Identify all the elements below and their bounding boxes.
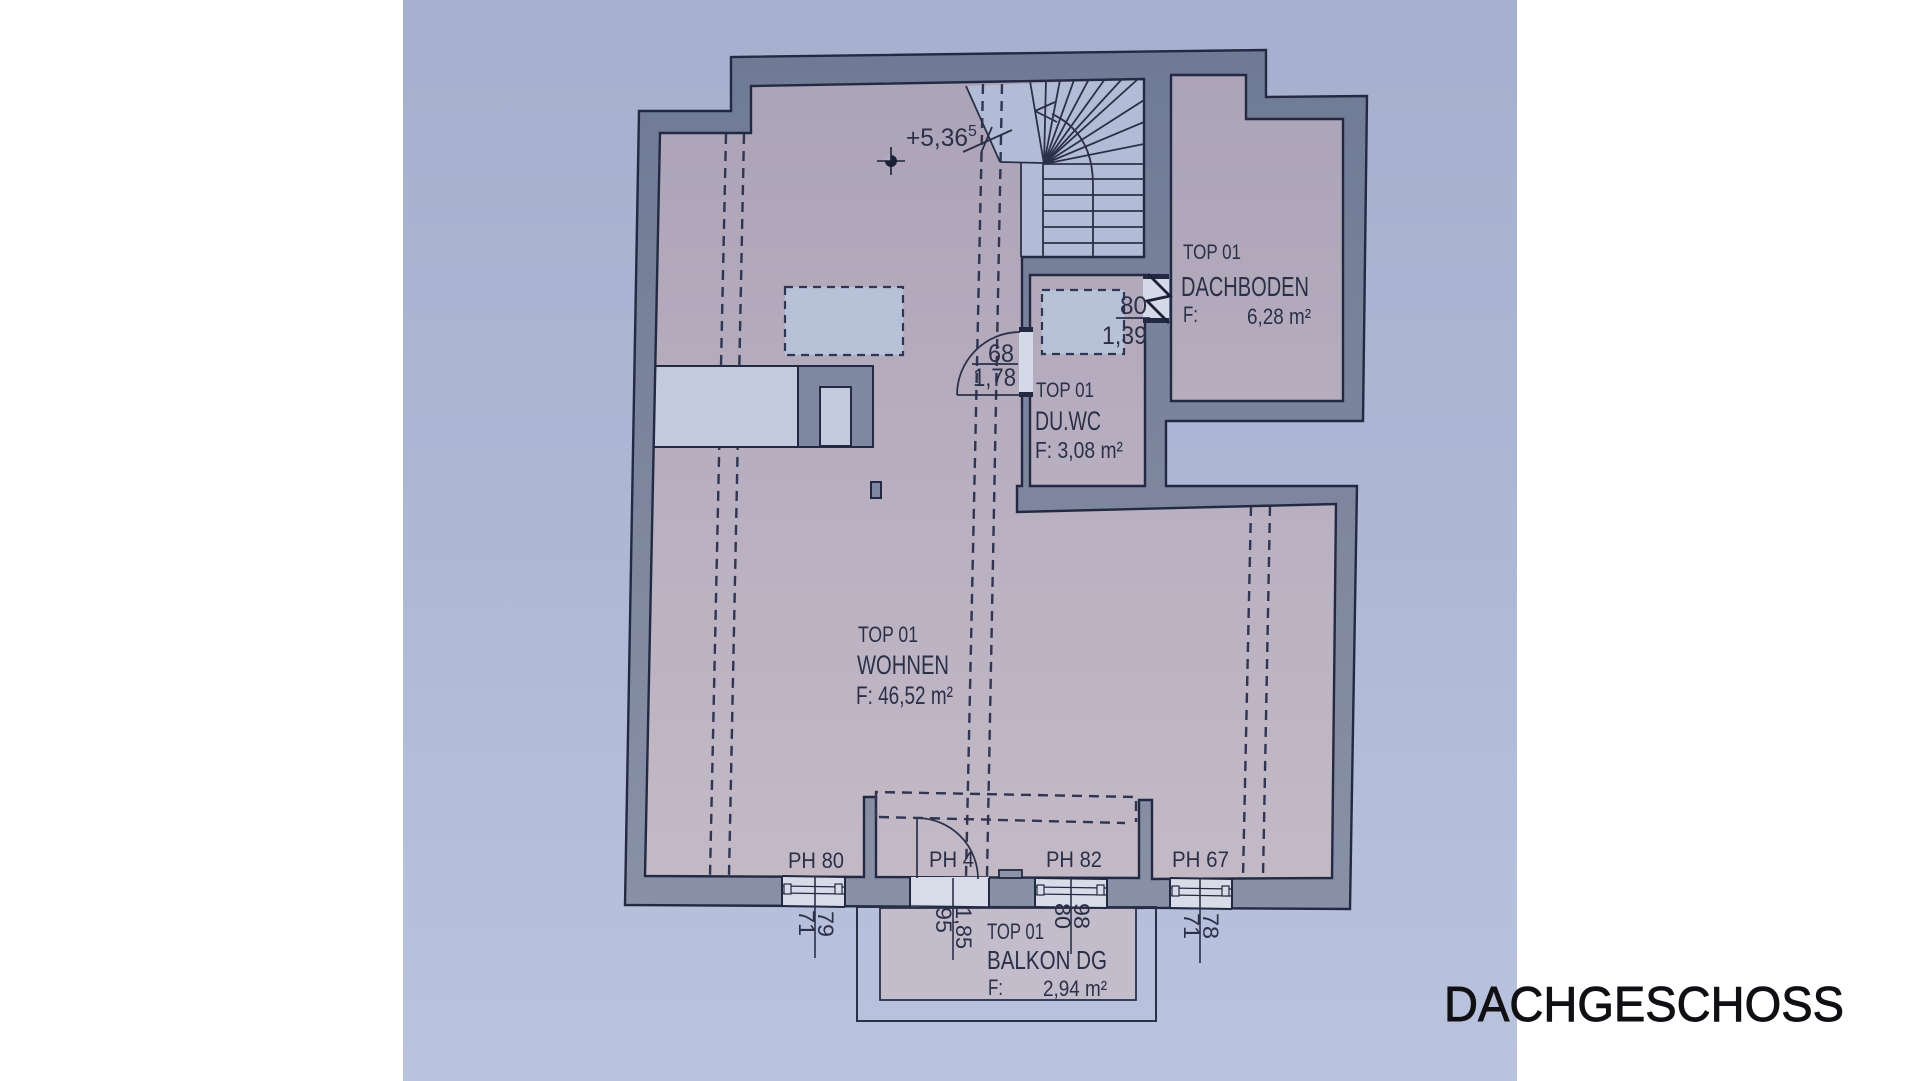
svg-text:TOP 01: TOP 01 xyxy=(987,919,1044,944)
svg-text:5: 5 xyxy=(968,123,977,140)
svg-text:78: 78 xyxy=(1198,913,1223,939)
svg-text:F: 46,52 m²: F: 46,52 m² xyxy=(856,682,953,710)
svg-text:F: 3,08 m²: F: 3,08 m² xyxy=(1035,437,1123,463)
svg-text:79: 79 xyxy=(813,911,838,937)
svg-text:F:: F: xyxy=(988,975,1003,1000)
svg-text:PH 80: PH 80 xyxy=(788,848,844,873)
svg-text:PH 67: PH 67 xyxy=(1172,847,1229,872)
svg-text:1,39: 1,39 xyxy=(1102,322,1147,350)
svg-text:80: 80 xyxy=(1120,292,1147,320)
svg-text:TOP 01: TOP 01 xyxy=(1183,241,1241,264)
svg-text:WOHNEN: WOHNEN xyxy=(857,650,949,680)
svg-text:DU.WC: DU.WC xyxy=(1035,406,1101,436)
svg-text:PH 82: PH 82 xyxy=(1046,847,1102,872)
svg-text:6,28 m²: 6,28 m² xyxy=(1247,304,1311,329)
svg-text:DACHGESCHOSS: DACHGESCHOSS xyxy=(1444,978,1844,1032)
svg-text:F:: F: xyxy=(1183,302,1198,327)
svg-text:TOP 01: TOP 01 xyxy=(858,622,918,647)
svg-text:98: 98 xyxy=(1069,903,1094,929)
svg-text:BALKON DG: BALKON DG xyxy=(987,945,1107,975)
svg-text:1,78: 1,78 xyxy=(973,364,1016,392)
svg-text:2,94 m²: 2,94 m² xyxy=(1043,976,1107,1001)
svg-text:TOP 01: TOP 01 xyxy=(1036,379,1094,402)
svg-text:PH 4: PH 4 xyxy=(929,847,974,872)
svg-text:+5,36: +5,36 xyxy=(906,124,968,152)
svg-text:DACHBODEN: DACHBODEN xyxy=(1181,271,1309,302)
svg-text:1,85: 1,85 xyxy=(951,907,976,949)
